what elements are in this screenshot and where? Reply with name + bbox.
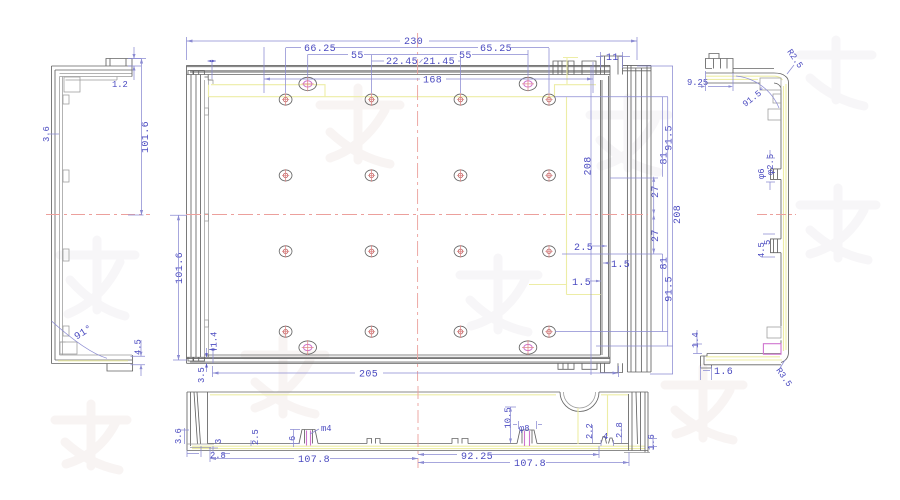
svg-text:208: 208 [673, 205, 684, 224]
svg-text:27: 27 [651, 185, 662, 198]
svg-text:6: 6 [288, 436, 298, 441]
svg-text:205: 205 [359, 370, 378, 381]
svg-text:11: 11 [606, 53, 619, 64]
svg-text:107.8: 107.8 [298, 455, 330, 466]
svg-text:101.6: 101.6 [175, 252, 186, 284]
svg-text:2.5: 2.5 [251, 429, 261, 445]
svg-text:10.5: 10.5 [504, 407, 514, 428]
svg-text:1.2: 1.2 [112, 80, 128, 90]
svg-text:168: 168 [423, 76, 442, 87]
svg-text:65.25: 65.25 [480, 44, 512, 55]
svg-text:91.5: 91.5 [665, 276, 676, 302]
svg-text:4: 4 [603, 432, 608, 442]
svg-text:55: 55 [459, 51, 472, 62]
svg-text:22.45: 22.45 [386, 57, 418, 68]
svg-text:230: 230 [404, 37, 423, 48]
svg-text:66.25: 66.25 [304, 44, 336, 55]
svg-text:2.2: 2.2 [585, 423, 595, 439]
svg-text:81: 81 [660, 257, 671, 270]
svg-text:27: 27 [651, 229, 662, 242]
svg-text:2.8: 2.8 [615, 422, 625, 438]
svg-text:1.5: 1.5 [572, 278, 591, 289]
svg-text:φ2.5: φ2.5 [766, 154, 776, 175]
svg-text:81: 81 [660, 152, 671, 165]
svg-text:21.45: 21.45 [423, 57, 455, 68]
svg-text:1.4: 1.4 [691, 332, 701, 348]
svg-text:m4: m4 [321, 424, 332, 434]
svg-text:4.5: 4.5 [757, 242, 767, 258]
svg-text:107.8: 107.8 [514, 459, 546, 470]
svg-text:3: 3 [214, 439, 224, 444]
svg-text:208: 208 [584, 156, 595, 175]
svg-text:2.5: 2.5 [574, 243, 593, 254]
svg-text:55: 55 [351, 51, 364, 62]
svg-text:1.6: 1.6 [714, 367, 733, 378]
svg-text:φ6: φ6 [757, 168, 767, 179]
svg-text:91.5: 91.5 [665, 125, 676, 151]
svg-text:φ8: φ8 [519, 424, 530, 434]
svg-text:1.6: 1.6 [647, 434, 657, 450]
svg-text:1.5: 1.5 [611, 260, 630, 271]
svg-text:2.8: 2.8 [210, 451, 226, 461]
svg-text:1.4: 1.4 [210, 332, 220, 348]
svg-text:3.5: 3.5 [197, 367, 207, 383]
svg-text:92.25: 92.25 [461, 452, 493, 463]
svg-text:101.6: 101.6 [141, 121, 152, 153]
svg-text:3.6: 3.6 [174, 428, 184, 444]
